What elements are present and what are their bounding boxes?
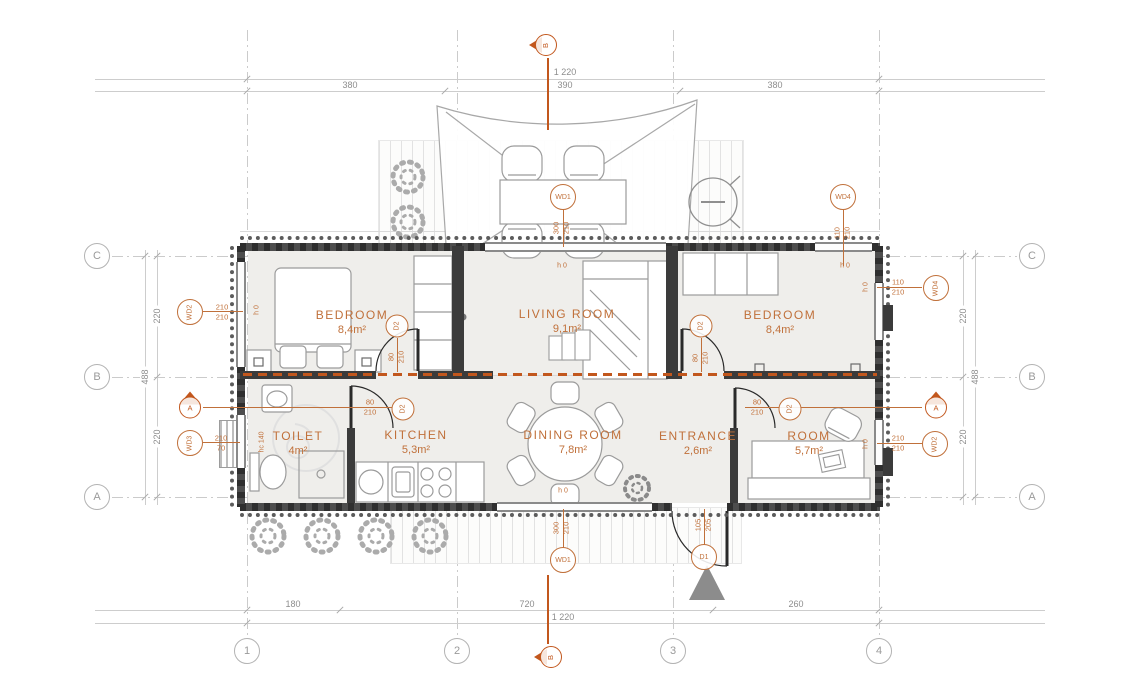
dims-d2-room: 80210 [751, 398, 764, 417]
height-label-bedroom1: h 0 [254, 305, 261, 315]
grid-bubble-row-a-left: A [84, 484, 110, 510]
marker-d2-kitchen: D2 [392, 398, 415, 421]
wall-bottom-center-stub [652, 503, 672, 511]
section-b-line-top [547, 58, 549, 130]
wall-bottom-right [727, 503, 880, 511]
exterior-unit-right-top [883, 305, 893, 331]
height-label-bedroom2: h 0 [840, 263, 850, 270]
dims-wd2-left: 210210 [216, 303, 229, 322]
marker-wd2-right: WD2 [922, 431, 948, 457]
room-label-room: ROOM 5,7m² [787, 429, 830, 457]
dims-wd1-bottom: 300210 [552, 522, 571, 535]
dims-wd4-top: 110210 [833, 227, 852, 240]
room-label-entrance: ENTRANCE 2,6m² [659, 429, 737, 457]
room-label-bedroom-2: BEDROOM 8,4m² [744, 308, 817, 336]
marker-wd4-right: WD4 [923, 275, 949, 301]
grid-bubble-row-a-right: A [1019, 484, 1045, 510]
wall-bottom-left [240, 503, 497, 511]
wall-top-left [240, 243, 485, 251]
kitchen-counter-icon [356, 462, 484, 502]
dims-d2-bedroom1: 80210 [387, 351, 406, 364]
wall-living-bedroom2 [666, 246, 678, 379]
marker-wd3-left: WD3 [177, 430, 203, 456]
room-label-living-room: LIVING ROOM 9,1m² [519, 307, 616, 335]
grid-bubble-col-1: 1 [234, 638, 260, 664]
grid-bubble-col-2: 2 [444, 638, 470, 664]
marker-wd1-bottom: WD1 [550, 547, 576, 573]
marker-d1: D1 [691, 544, 717, 570]
bbq-grill-icon [689, 176, 740, 228]
dims-wd4-right: 110210 [892, 278, 905, 297]
height-label-toilet: hc 140 [259, 431, 266, 452]
dims-d2-bedroom2: 80210 [691, 352, 710, 365]
marker-wd1-top: WD1 [550, 184, 576, 210]
grid-bubble-col-3: 3 [660, 638, 686, 664]
grid-bubble-row-b-left: B [84, 364, 110, 390]
window-wd2-left [236, 262, 246, 367]
window-wd1-top [485, 242, 666, 252]
floor-plan-canvas: BEDROOM 8,4m² LIVING ROOM 9,1m² BEDROOM … [0, 0, 1135, 697]
marker-wd4-top: WD4 [830, 184, 856, 210]
room-label-kitchen: KITCHEN 5,3m² [384, 428, 447, 456]
dims-wd2-right: 210210 [892, 434, 905, 453]
corrugation-bottom [240, 513, 880, 517]
grid-bubble-row-b-right: B [1019, 364, 1045, 390]
wall-left-3 [237, 468, 245, 507]
room-label-bedroom-1: BEDROOM 8,4m² [316, 308, 389, 336]
window-wd1-bottom [497, 502, 652, 512]
marker-d2-bedroom2: D2 [690, 315, 713, 338]
dims-wd3-left: 21070 [215, 434, 228, 453]
height-label-wd4-right: h 0 [863, 282, 870, 292]
marker-d2-bedroom1: D2 [386, 315, 409, 338]
marker-d2-room: D2 [779, 398, 802, 421]
wall-bedroom1-living [452, 246, 464, 379]
height-label-dining: h 0 [558, 488, 568, 495]
shower-icon [299, 451, 344, 498]
section-marker-a-right: A [925, 392, 947, 419]
section-marker-b-top: B [529, 34, 557, 56]
entrance-arrow-icon [689, 565, 725, 600]
wall-right-2 [875, 340, 883, 420]
dims-wd1-top: 300210 [552, 222, 571, 235]
toilet-icon [250, 453, 286, 491]
wall-right-3 [875, 465, 883, 507]
section-marker-b-bottom: B [534, 646, 562, 668]
room-label-toilet: TOILET 4m² [273, 429, 324, 457]
wardrobe-icon [414, 256, 452, 370]
section-dashed-line [243, 373, 877, 376]
dims-d1: 105205 [694, 519, 713, 532]
wall-toilet-kitchen [347, 428, 355, 503]
grid-bubble-col-4: 4 [866, 638, 892, 664]
grid-bubble-row-c-left: C [84, 243, 110, 269]
section-b-line-bottom [547, 575, 549, 644]
dims-d2-kitchen: 80210 [364, 398, 377, 417]
corrugation-top [240, 236, 880, 240]
wall-left-1 [237, 246, 245, 262]
height-label-wd2-right: h 0 [863, 439, 870, 449]
wall-top-right [666, 243, 815, 251]
leader-section-a-right [745, 407, 922, 408]
plan-drawing-layer [0, 0, 1135, 697]
wall-right-1 [875, 246, 883, 283]
section-marker-a-left: A [179, 392, 201, 419]
marker-wd2-left: WD2 [177, 299, 203, 325]
grid-bubble-row-c-right: C [1019, 243, 1045, 269]
room-label-dining-room: DINING ROOM 7,8m² [523, 428, 622, 456]
height-label-living: h 0 [557, 263, 567, 270]
